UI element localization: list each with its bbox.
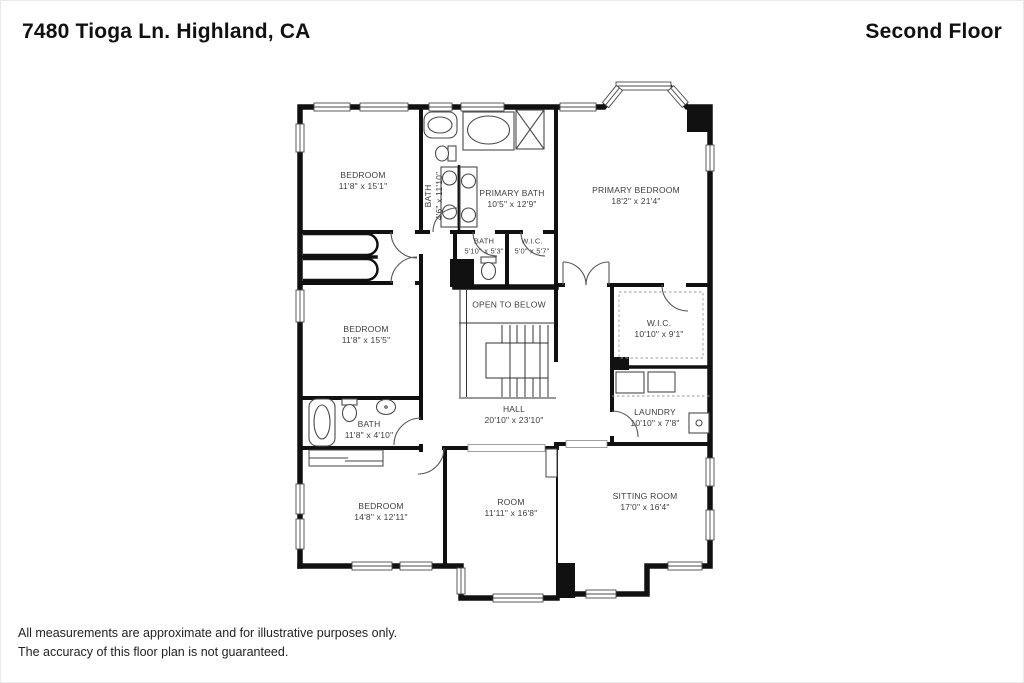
shower-icon [516, 110, 544, 149]
room-label-lower-bath: BATH 11'8" x 4'10" [345, 419, 394, 441]
room-label-hall: HALL 20'10" x 23'10" [484, 404, 543, 426]
floor-plan-drawing [0, 0, 1024, 683]
room-label-laundry: LAUNDRY 10'10" x 7'8" [630, 407, 679, 429]
vanity-sinks-icon [441, 165, 477, 230]
room-label-small-wic: W.I.C. 5'0" x 5'7" [515, 236, 550, 256]
toilet-icon [436, 146, 457, 161]
room-label-primary-wic: W.I.C. 10'10" x 9'1" [634, 318, 683, 340]
sink-icon [377, 400, 396, 415]
bathtub-icon [309, 399, 335, 446]
bathtub-icon [424, 112, 457, 138]
soaking-tub-icon [463, 112, 514, 150]
double-door [563, 262, 609, 285]
disclaimer-line-2: The accuracy of this floor plan is not g… [18, 643, 397, 662]
room-label-bedroom-mid: BEDROOM 11'8" x 15'5" [342, 324, 391, 346]
room-label-room: ROOM 11'11" x 16'8" [485, 497, 538, 519]
disclaimer: All measurements are approximate and for… [18, 624, 397, 662]
room-label-sitting-room: SITTING ROOM 17'0" x 16'4" [613, 491, 678, 513]
room-label-open-to-below: OPEN TO BELOW [472, 299, 546, 310]
laundry-sink-icon [689, 413, 709, 433]
room-label-primary-bath: PRIMARY BATH 10'5" x 12'9" [479, 188, 544, 210]
room-label-primary-bedroom: PRIMARY BEDROOM 18'2" x 21'4" [592, 185, 680, 207]
room-label-hall-bath: BATH 4'6" x 11'10" [423, 172, 445, 221]
disclaimer-line-1: All measurements are approximate and for… [18, 624, 397, 643]
cased-openings [468, 441, 607, 452]
sliding-door-closet [309, 450, 383, 466]
room-label-bedroom-top: BEDROOM 11'8" x 15'1" [339, 170, 388, 192]
room-label-small-bath: BATH 5'10" x 5'3" [464, 236, 503, 256]
room-label-bedroom-bottom: BEDROOM 14'8" x 12'11" [354, 501, 408, 523]
toilet-icon [481, 257, 496, 280]
floor-plan-page: 7480 Tioga Ln. Highland, CA Second Floor [0, 0, 1024, 683]
